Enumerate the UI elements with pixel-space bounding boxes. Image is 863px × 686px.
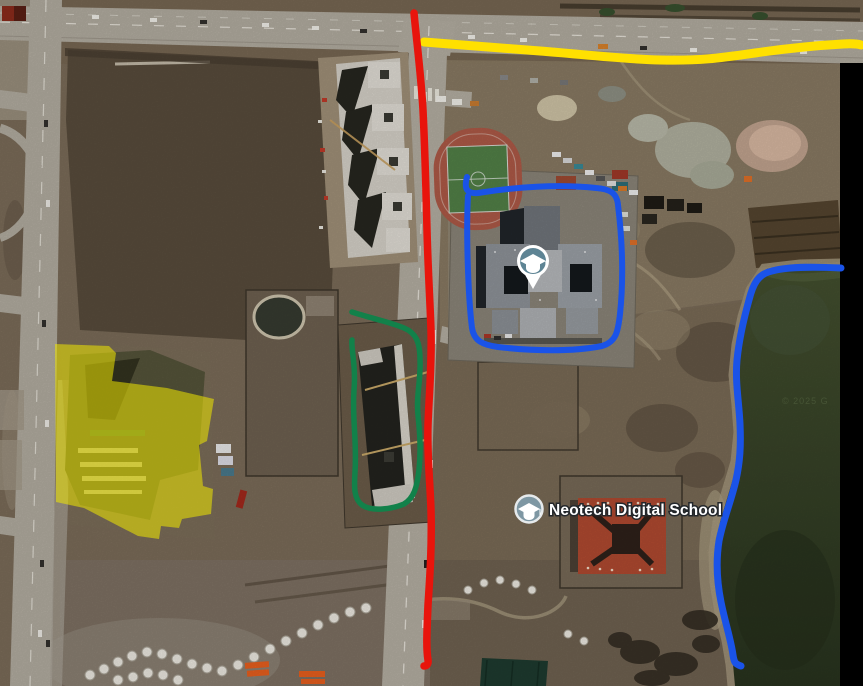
school-label-text[interactable]: Neotech Digital School [549,502,722,519]
map-edge-black-strip [840,63,863,686]
map-watermark: © 2025 G [782,396,829,406]
satellite-map-view[interactable]: © 2025 G Neotech Digital School [0,0,863,686]
